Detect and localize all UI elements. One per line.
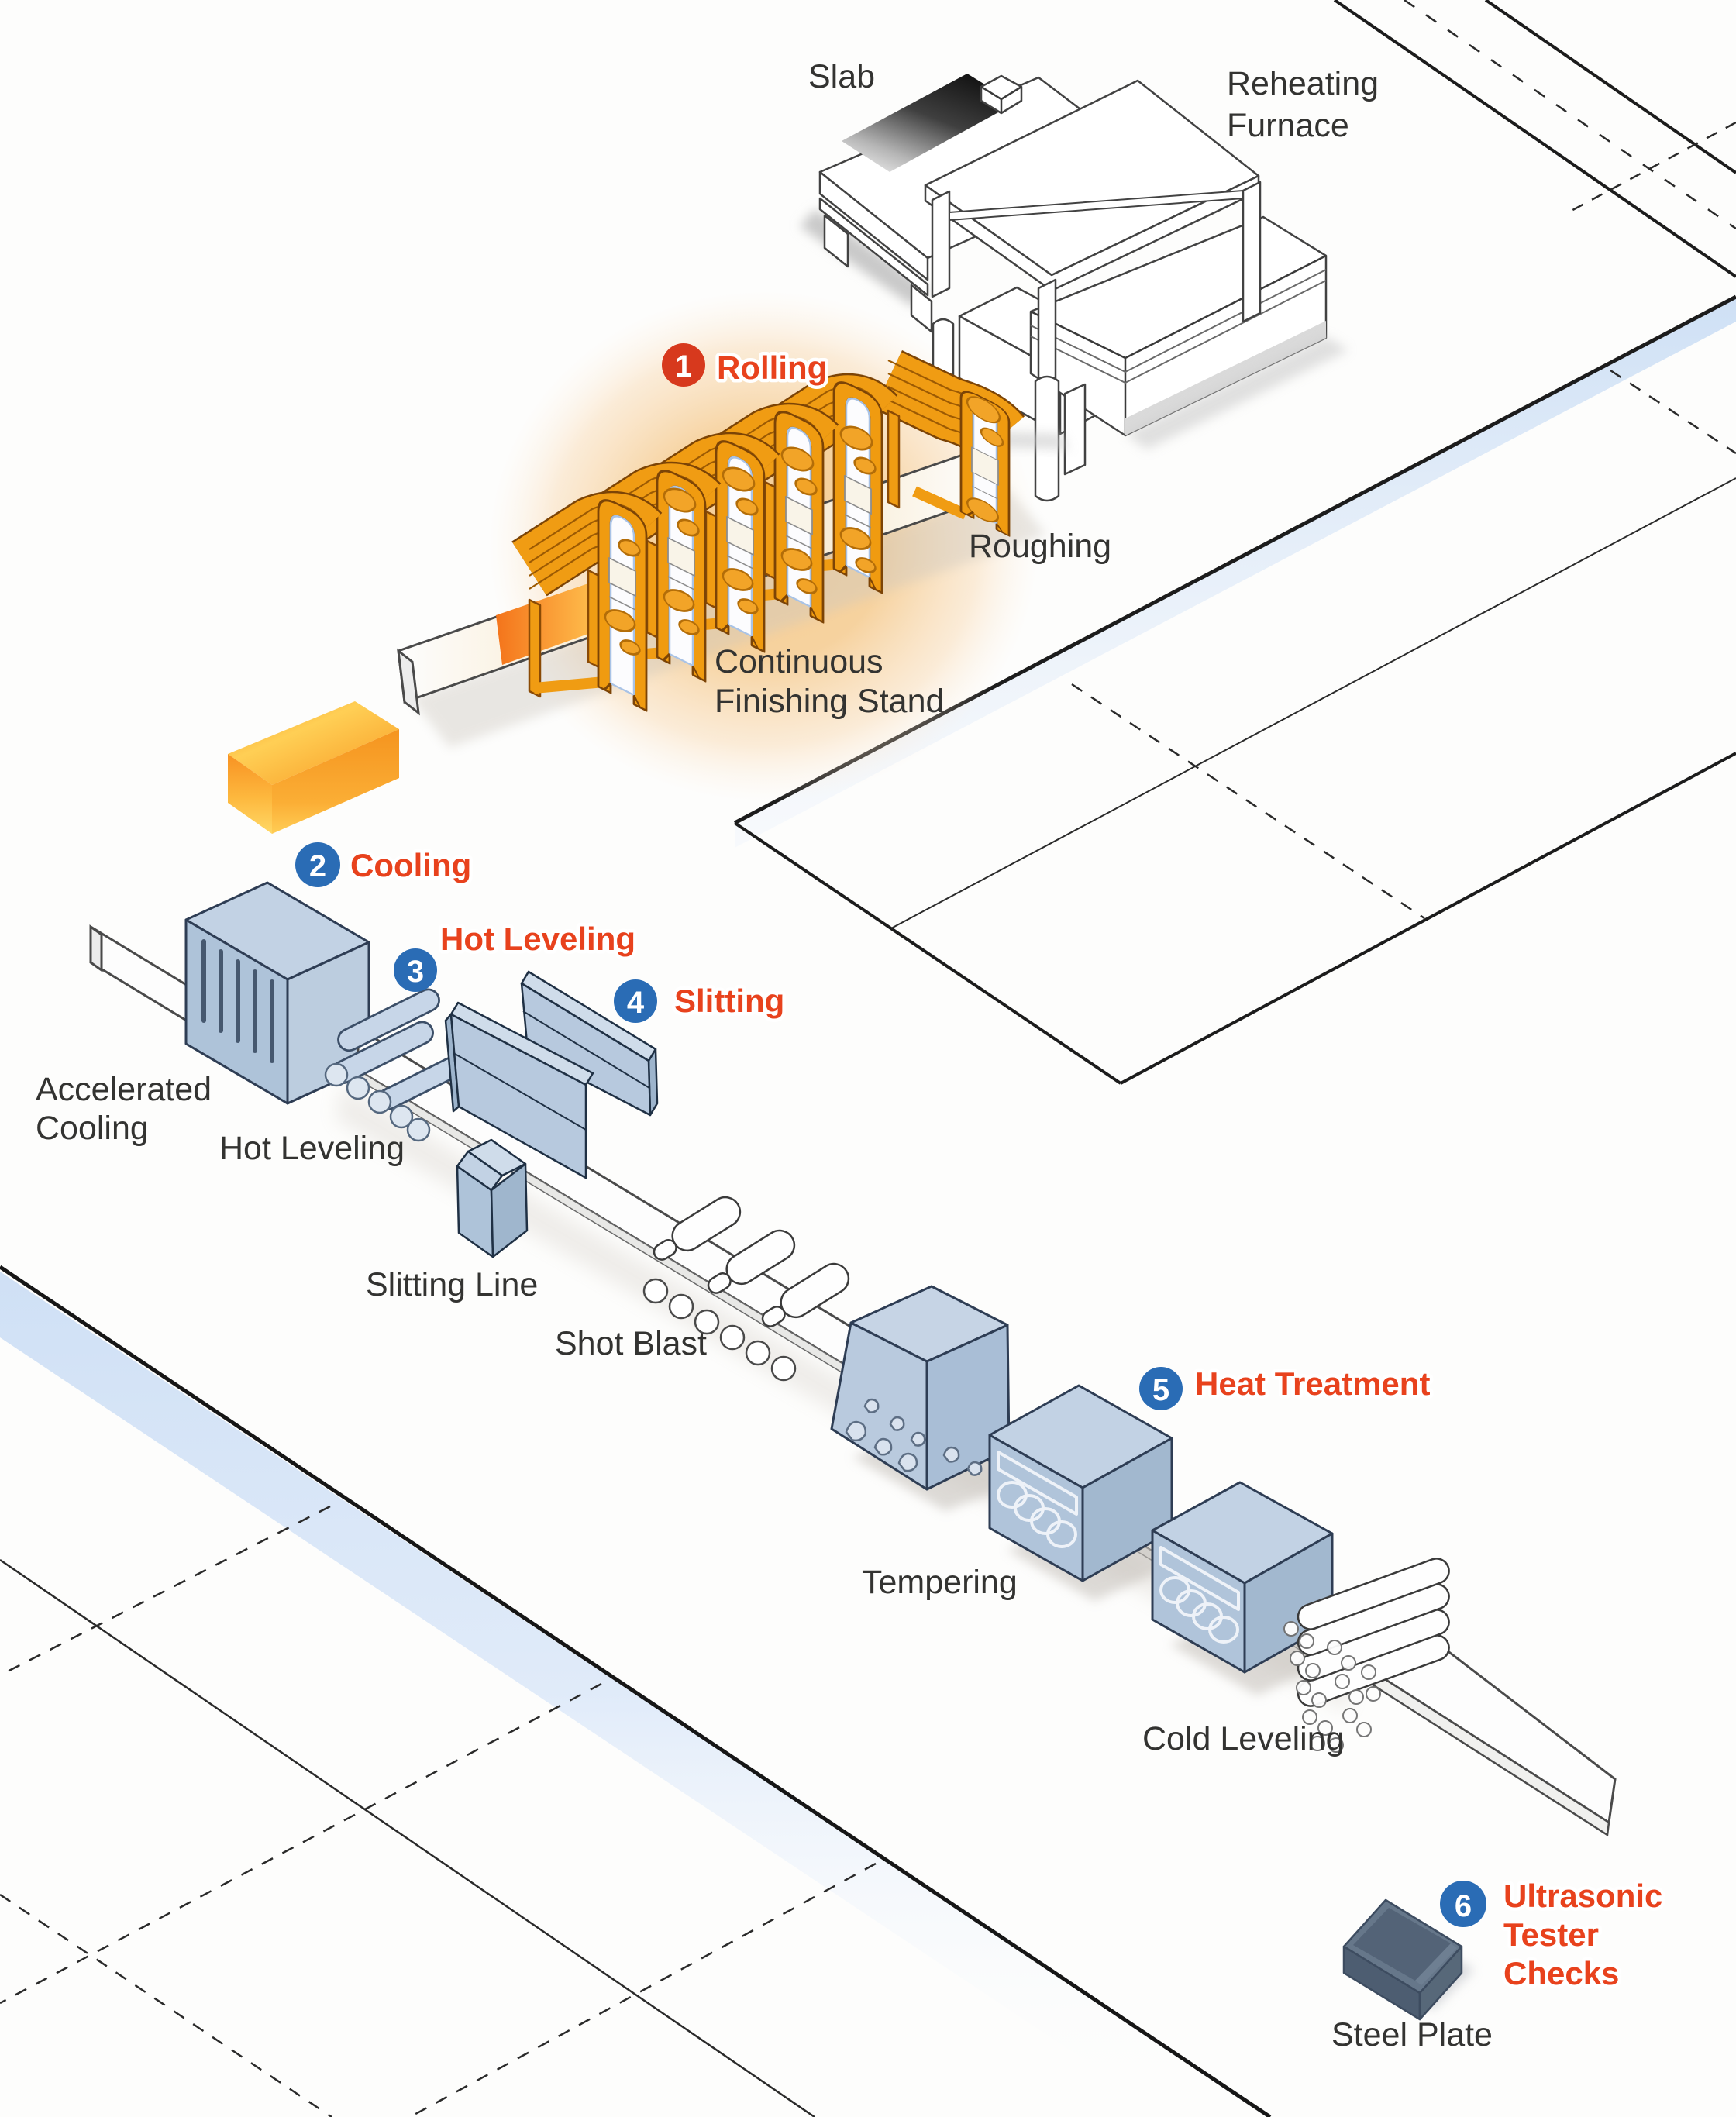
svg-text:Hot Leveling: Hot Leveling (440, 921, 635, 957)
svg-text:Slitting Line: Slitting Line (366, 1266, 538, 1303)
svg-text:Roughing: Roughing (969, 528, 1111, 565)
svg-text:3: 3 (407, 955, 424, 989)
svg-text:Cold Leveling: Cold Leveling (1142, 1720, 1345, 1757)
svg-text:Shot Blast: Shot Blast (555, 1325, 707, 1362)
svg-text:2: 2 (309, 849, 326, 883)
svg-text:Steel Plate: Steel Plate (1331, 2016, 1493, 2053)
svg-text:4: 4 (627, 986, 645, 1020)
svg-text:1: 1 (675, 349, 692, 384)
svg-text:6: 6 (1455, 1889, 1472, 1923)
svg-text:Rolling: Rolling (717, 349, 827, 386)
svg-text:Slab: Slab (808, 58, 875, 95)
svg-text:Tempering: Tempering (862, 1564, 1018, 1601)
svg-text:Slitting: Slitting (674, 983, 784, 1019)
svg-text:Cooling: Cooling (350, 847, 471, 883)
svg-text:Heat Treatment: Heat Treatment (1195, 1365, 1430, 1402)
svg-text:Hot Leveling: Hot Leveling (219, 1130, 405, 1167)
svg-text:5: 5 (1152, 1373, 1169, 1407)
